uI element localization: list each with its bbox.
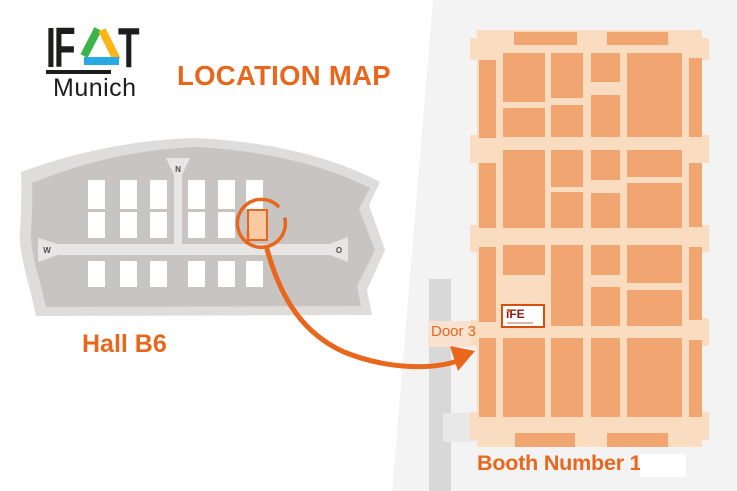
- hall-rect: [218, 261, 235, 287]
- hall-rect: [150, 180, 167, 209]
- ife-logo-dot: [507, 309, 510, 312]
- booth-block: [689, 58, 702, 137]
- overview-map: N W O: [18, 128, 388, 324]
- compass-north-label: N: [175, 165, 181, 174]
- booth-block: [551, 338, 583, 417]
- corridor-west-east: [58, 244, 330, 255]
- hall-rect: [218, 180, 235, 209]
- location-map-title: LOCATION MAP: [177, 60, 391, 92]
- hall-rect: [188, 212, 205, 238]
- booth-block: [551, 150, 583, 187]
- booth-block: [627, 290, 682, 326]
- booth-block: [503, 150, 545, 228]
- booth-block: [591, 338, 620, 417]
- booth-block: [503, 53, 545, 102]
- floor-bump: [699, 135, 709, 163]
- floor-bump: [470, 135, 480, 163]
- hall-rect: [246, 180, 263, 209]
- booth-block: [551, 192, 583, 228]
- booth-block: [591, 245, 620, 275]
- booth-highlight: [248, 210, 267, 240]
- hall-rect: [246, 261, 263, 287]
- hall-rect: [120, 261, 137, 287]
- logo-text-if: IF: [46, 20, 74, 77]
- hall-rect: [88, 261, 105, 287]
- ifat-triangle-icon: [79, 25, 122, 66]
- booth-number-label: Booth Number 139: [477, 451, 665, 476]
- booth-block: [551, 105, 583, 137]
- ife-booth: iFE: [501, 304, 545, 328]
- hall-rect: [188, 180, 205, 209]
- booth-block: [479, 60, 496, 138]
- booth-block: [591, 193, 620, 228]
- hall-rect: [88, 180, 105, 209]
- compass-west-label: W: [43, 246, 51, 255]
- booth-block: [591, 150, 620, 180]
- booth-block: [689, 340, 702, 417]
- floor-bump: [470, 38, 480, 60]
- booth-block: [627, 338, 682, 417]
- booth-block: [627, 150, 682, 177]
- booth-block: [591, 53, 620, 82]
- booth-block: [479, 163, 496, 228]
- booth-block: [627, 245, 682, 283]
- booth-block: [479, 338, 496, 417]
- ife-logo-tagline: [507, 322, 533, 324]
- booth-block: [503, 338, 545, 417]
- logo-text-t: T: [118, 20, 138, 77]
- booth-layer: [470, 28, 709, 449]
- booth-block: [689, 247, 702, 320]
- booth-block: [514, 32, 577, 45]
- booth-block: [627, 53, 682, 137]
- booth-block: [503, 108, 545, 137]
- booth-block: [551, 53, 583, 98]
- ifat-logo: IF T Munich: [45, 12, 170, 107]
- corridor-band: [429, 279, 451, 491]
- detail-map: iFE: [470, 28, 709, 449]
- compass-east-label: O: [336, 246, 342, 255]
- hall-rect: [188, 261, 205, 287]
- booth-block: [607, 433, 668, 447]
- booth-block: [551, 245, 583, 326]
- booth-block: [479, 247, 496, 322]
- white-box: [640, 454, 686, 477]
- hall-rect: [218, 212, 235, 238]
- hall-rect: [150, 212, 167, 238]
- door-3-label: Door 3: [431, 323, 476, 340]
- booth-block: [503, 245, 545, 275]
- floor-bump: [699, 38, 709, 60]
- location-map-page: IF T Munich LOCATION MAP N W O Hall B6 i…: [0, 0, 737, 491]
- logo-city: Munich: [53, 74, 137, 103]
- booth-block: [515, 433, 575, 447]
- hall-b6-label: Hall B6: [82, 330, 167, 359]
- booth-block: [607, 32, 668, 45]
- hall-rect: [120, 180, 137, 209]
- hall-rect: [150, 261, 167, 287]
- booth-block: [591, 95, 620, 137]
- booth-block: [689, 163, 702, 227]
- hall-rect: [120, 212, 137, 238]
- booth-block: [591, 287, 620, 326]
- hall-rect: [88, 212, 105, 238]
- booth-block: [627, 183, 682, 228]
